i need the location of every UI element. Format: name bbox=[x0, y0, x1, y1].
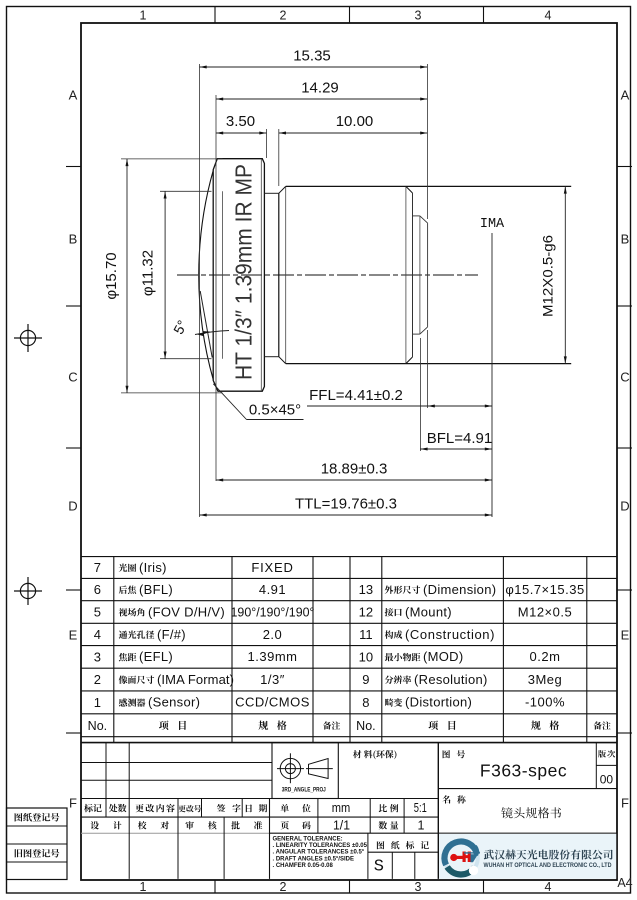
svg-text:8: 8 bbox=[362, 695, 369, 710]
svg-text:. DRAFT ANGLES ±0.5°/SIDE: . DRAFT ANGLES ±0.5°/SIDE bbox=[273, 856, 354, 862]
svg-text:-100%: -100% bbox=[525, 695, 565, 710]
svg-text:2: 2 bbox=[280, 9, 287, 23]
svg-text:WUHAN HT OPTICAL AND ELECTRONI: WUHAN HT OPTICAL AND ELECTRONIC CO., LTD bbox=[484, 862, 613, 869]
svg-text:B: B bbox=[621, 232, 630, 247]
svg-text:F363-spec: F363-spec bbox=[480, 761, 567, 781]
svg-text:F: F bbox=[69, 796, 77, 811]
svg-text:1: 1 bbox=[94, 695, 101, 710]
svg-text:10: 10 bbox=[359, 649, 373, 664]
svg-text:TTL=19.76±0.3: TTL=19.76±0.3 bbox=[295, 496, 397, 513]
svg-text:(Mount): (Mount) bbox=[405, 604, 452, 619]
svg-text:A4: A4 bbox=[617, 876, 632, 890]
svg-text:7: 7 bbox=[94, 560, 101, 575]
svg-text:4.91: 4.91 bbox=[259, 582, 286, 597]
svg-text:12: 12 bbox=[359, 605, 373, 620]
svg-text:(F/#): (F/#) bbox=[157, 627, 186, 642]
svg-text:2: 2 bbox=[94, 672, 101, 687]
svg-text:(Dimension): (Dimension) bbox=[423, 582, 496, 597]
svg-text:1.39mm: 1.39mm bbox=[248, 649, 298, 664]
svg-text:0.5×45°: 0.5×45° bbox=[249, 402, 301, 419]
svg-text:E: E bbox=[69, 628, 78, 643]
svg-text:BFL=4.91: BFL=4.91 bbox=[427, 430, 492, 447]
svg-text:. ANGULAR TOLERANCES ±0.5°: . ANGULAR TOLERANCES ±0.5° bbox=[273, 850, 365, 856]
svg-text:No.: No. bbox=[356, 719, 375, 733]
svg-text:C: C bbox=[68, 370, 77, 385]
svg-text:(Iris): (Iris) bbox=[139, 560, 167, 575]
svg-text:(Construction): (Construction) bbox=[405, 627, 495, 642]
svg-text:4: 4 bbox=[545, 9, 552, 23]
svg-text:1: 1 bbox=[418, 819, 425, 833]
svg-text:(EFL): (EFL) bbox=[139, 649, 173, 664]
svg-text:E: E bbox=[621, 628, 630, 643]
svg-text:6: 6 bbox=[94, 582, 101, 597]
svg-text:4: 4 bbox=[545, 880, 552, 894]
svg-text:M12×0.5: M12×0.5 bbox=[518, 604, 572, 619]
svg-text:A: A bbox=[621, 88, 630, 103]
svg-text:(Resolution): (Resolution) bbox=[414, 672, 488, 687]
svg-text:0.2m: 0.2m bbox=[530, 649, 561, 664]
svg-text:FIXED: FIXED bbox=[251, 560, 293, 575]
svg-text:9: 9 bbox=[362, 672, 369, 687]
svg-text:1/3″: 1/3″ bbox=[260, 672, 285, 687]
svg-text:15.35: 15.35 bbox=[293, 48, 331, 65]
svg-text:φ15.70: φ15.70 bbox=[103, 252, 120, 299]
svg-text:B: B bbox=[69, 232, 78, 247]
svg-text:3Meg: 3Meg bbox=[528, 672, 563, 687]
svg-text:F: F bbox=[621, 796, 629, 811]
svg-text:5: 5 bbox=[94, 605, 101, 620]
svg-text:CCD/CMOS: CCD/CMOS bbox=[235, 695, 310, 710]
svg-text:IMA: IMA bbox=[480, 217, 505, 232]
svg-text:(Distortion): (Distortion) bbox=[405, 695, 472, 710]
svg-text:φ15.7×15.35: φ15.7×15.35 bbox=[505, 582, 584, 597]
svg-text:HT 1/3″ 1.39mm IR MP: HT 1/3″ 1.39mm IR MP bbox=[231, 164, 257, 380]
svg-text:No.: No. bbox=[88, 719, 107, 733]
svg-text:A: A bbox=[69, 88, 78, 103]
svg-text:14.29: 14.29 bbox=[301, 80, 339, 97]
svg-text:S: S bbox=[374, 858, 384, 877]
svg-text:4: 4 bbox=[94, 627, 101, 642]
svg-text:φ11.32: φ11.32 bbox=[140, 250, 157, 296]
svg-text:18.89±0.3: 18.89±0.3 bbox=[321, 461, 388, 478]
svg-text:C: C bbox=[620, 370, 629, 385]
svg-text:M12X0.5-g6: M12X0.5-g6 bbox=[541, 235, 556, 317]
svg-text:2.0: 2.0 bbox=[263, 627, 283, 642]
svg-text:10.00: 10.00 bbox=[336, 113, 374, 130]
svg-text:13: 13 bbox=[359, 582, 373, 597]
svg-text:FFL=4.41±0.2: FFL=4.41±0.2 bbox=[309, 387, 403, 404]
svg-text:D: D bbox=[620, 499, 629, 514]
svg-text:11: 11 bbox=[359, 627, 373, 642]
svg-text:(BFL): (BFL) bbox=[139, 582, 173, 597]
svg-text:. CHAMFER 0.05-0.08: . CHAMFER 0.05-0.08 bbox=[273, 863, 334, 869]
svg-text:D: D bbox=[68, 499, 77, 514]
svg-text:mm: mm bbox=[332, 800, 351, 815]
svg-text:(FOV D/H/V): (FOV D/H/V) bbox=[148, 604, 225, 619]
svg-text:. LINEARITY TOLERANCES ±0.05: . LINEARITY TOLERANCES ±0.05 bbox=[273, 843, 368, 849]
svg-text:(IMA Format): (IMA Format) bbox=[157, 672, 234, 687]
svg-text:1: 1 bbox=[140, 880, 147, 894]
svg-text:3: 3 bbox=[415, 9, 422, 23]
svg-text:(Sensor): (Sensor) bbox=[148, 695, 200, 710]
svg-text:1: 1 bbox=[140, 9, 147, 23]
svg-text:5:1: 5:1 bbox=[414, 801, 427, 815]
svg-text:(MOD): (MOD) bbox=[423, 649, 464, 664]
svg-text:1/1: 1/1 bbox=[333, 819, 350, 833]
svg-text:3: 3 bbox=[415, 880, 422, 894]
svg-text:3RD_ANGLE_PROJ: 3RD_ANGLE_PROJ bbox=[282, 787, 326, 794]
svg-text:2: 2 bbox=[280, 880, 287, 894]
svg-text:00: 00 bbox=[600, 773, 614, 787]
svg-text:3.50: 3.50 bbox=[226, 113, 255, 130]
svg-text:GENERAL TOLERANCE:: GENERAL TOLERANCE: bbox=[273, 837, 343, 843]
svg-text:3: 3 bbox=[94, 649, 101, 664]
svg-text:190°/190°/190°: 190°/190°/190° bbox=[231, 604, 315, 619]
